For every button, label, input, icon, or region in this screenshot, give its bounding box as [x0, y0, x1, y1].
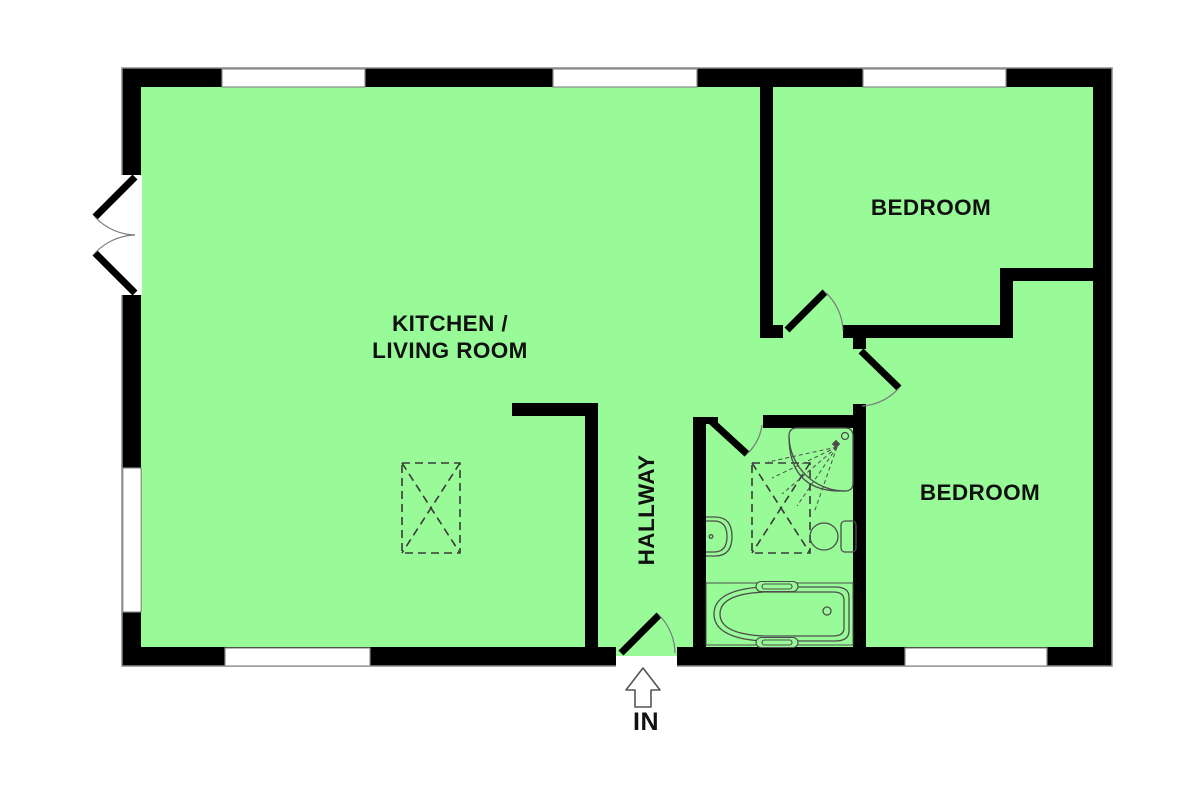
bedroom1-bottom-wall: [843, 325, 1013, 338]
window-bottom-left: [225, 648, 370, 666]
window-left: [123, 468, 141, 612]
bedroom-top-label: BEDROOM: [871, 195, 991, 220]
bathroom-right-wall: [853, 404, 866, 648]
up-arrow-icon: [626, 668, 660, 707]
floor-plan-page: KITCHEN / LIVING ROOM BEDROOM BEDROOM HA…: [0, 0, 1200, 800]
bedroom2-door-stub: [853, 338, 866, 349]
window-bottom-right: [905, 648, 1047, 666]
bathroom-left-wall: [693, 417, 706, 648]
window-top-right: [863, 69, 1006, 87]
hallway-label: HALLWAY: [634, 455, 659, 566]
hallway-wall-vertical: [585, 403, 598, 648]
floor-area: [141, 87, 1093, 647]
kitchen-living-label-line2: LIVING ROOM: [372, 338, 528, 363]
bedroom-partition-wall: [760, 87, 773, 338]
window-top-middle: [553, 69, 697, 87]
bedroom-bottom-label: BEDROOM: [920, 480, 1040, 505]
notch-wall-horizontal: [1000, 268, 1093, 281]
bathroom-top-wall: [763, 415, 856, 428]
floor-plan: KITCHEN / LIVING ROOM BEDROOM BEDROOM HA…: [0, 0, 1200, 800]
window-top-left: [222, 69, 365, 87]
entrance-in-label: IN: [633, 708, 659, 736]
bedroom1-wall-stub: [760, 325, 783, 338]
kitchen-living-label-line1: KITCHEN /: [392, 311, 508, 336]
